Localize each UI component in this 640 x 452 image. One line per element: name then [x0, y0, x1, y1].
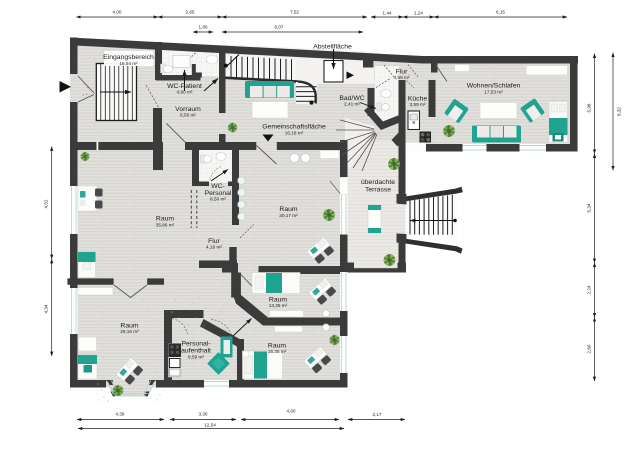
svg-text:Raum: Raum [279, 206, 297, 213]
svg-text:3,59 m²: 3,59 m² [410, 102, 426, 107]
svg-text:6,07: 6,07 [275, 25, 284, 30]
svg-text:5,34: 5,34 [587, 203, 592, 212]
svg-text:16,04 m²: 16,04 m² [119, 61, 138, 66]
svg-text:4,34: 4,34 [44, 304, 49, 313]
svg-text:12,54: 12,54 [204, 423, 216, 428]
svg-text:8,50 m²: 8,50 m² [180, 113, 196, 118]
svg-text:8,50 m²: 8,50 m² [210, 197, 226, 202]
svg-text:Wohnen/Schlafen: Wohnen/Schlafen [467, 83, 521, 90]
svg-text:aufenthalt: aufenthalt [181, 348, 211, 355]
svg-text:3,59 m²: 3,59 m² [394, 75, 410, 80]
svg-text:29,16 m²: 29,16 m² [120, 329, 139, 334]
svg-text:35,86 m²: 35,86 m² [156, 223, 175, 228]
svg-text:4,00: 4,00 [113, 10, 122, 15]
svg-text:2,41 m²: 2,41 m² [344, 102, 360, 107]
svg-text:16,18 m²: 16,18 m² [285, 131, 304, 136]
svg-text:Raum: Raum [156, 216, 174, 223]
svg-text:Abstellfläche: Abstellfläche [313, 44, 352, 51]
svg-text:1,44: 1,44 [383, 11, 392, 16]
svg-text:1,24: 1,24 [414, 11, 423, 16]
svg-text:15,35 m²: 15,35 m² [268, 349, 287, 354]
svg-text:2,60: 2,60 [587, 344, 592, 353]
svg-text:4,16 m²: 4,16 m² [206, 245, 222, 250]
svg-text:7,52: 7,52 [290, 10, 299, 15]
svg-text:2,17: 2,17 [373, 412, 382, 417]
svg-text:2,65: 2,65 [186, 10, 195, 15]
svg-text:17,53 m²: 17,53 m² [484, 90, 503, 95]
svg-text:5,98: 5,98 [587, 103, 592, 112]
svg-text:4,60 m²: 4,60 m² [177, 90, 193, 95]
svg-text:8,32: 8,32 [617, 107, 622, 116]
svg-text:1,80: 1,80 [199, 25, 208, 30]
svg-text:Terrasse: Terrasse [365, 187, 391, 194]
svg-text:4,60: 4,60 [287, 409, 296, 414]
svg-text:2,24: 2,24 [587, 285, 592, 294]
svg-text:8,59 m²: 8,59 m² [188, 355, 204, 360]
svg-text:Personal-: Personal- [181, 341, 210, 348]
svg-text:Eingangsbereich: Eingangsbereich [103, 54, 154, 61]
svg-text:4,52: 4,52 [44, 199, 49, 208]
svg-text:6,15: 6,15 [496, 10, 505, 15]
svg-text:4,39: 4,39 [116, 412, 125, 417]
svg-text:13,35 m²: 13,35 m² [269, 303, 288, 308]
svg-text:überdachte: überdachte [361, 179, 395, 186]
svg-text:3,30: 3,30 [199, 412, 208, 417]
svg-text:WC-: WC- [211, 183, 225, 190]
svg-text:Gemeinschaftsfläche: Gemeinschaftsfläche [262, 124, 326, 131]
svg-text:20,17 m²: 20,17 m² [279, 213, 298, 218]
